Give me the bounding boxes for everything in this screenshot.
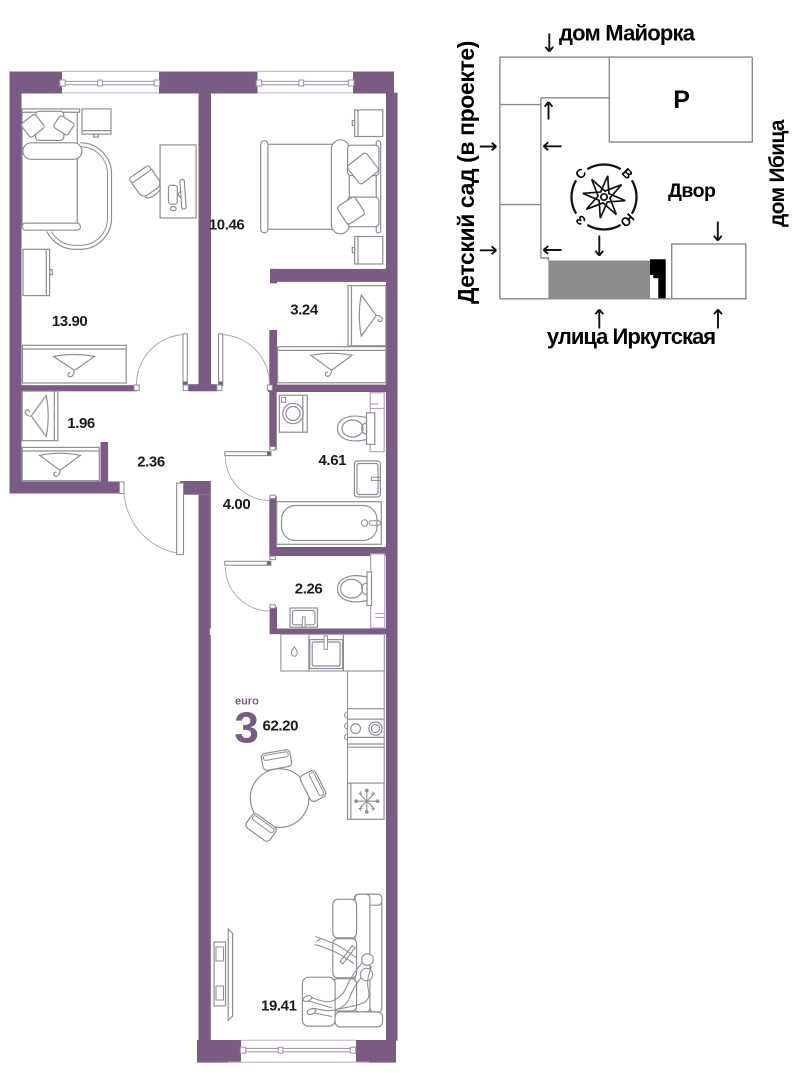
svg-text:4.61: 4.61 [318, 452, 346, 469]
svg-text:2.26: 2.26 [295, 581, 323, 598]
svg-text:Детский сад (в проекте): Детский сад (в проекте) [453, 41, 479, 304]
svg-text:дом Ибица: дом Ибица [766, 119, 789, 227]
svg-text:дом Майорка: дом Майорка [559, 21, 696, 46]
svg-text:62.20: 62.20 [263, 718, 299, 735]
svg-text:2.36: 2.36 [137, 454, 165, 471]
svg-text:10.46: 10.46 [209, 217, 245, 234]
svg-text:19.41: 19.41 [261, 998, 297, 1015]
svg-text:Двор: Двор [668, 180, 716, 202]
svg-text:Р: Р [673, 86, 690, 114]
svg-text:1.96: 1.96 [67, 415, 95, 432]
svg-text:13.90: 13.90 [52, 313, 88, 330]
svg-text:4.00: 4.00 [223, 496, 251, 513]
svg-text:улица Иркутская: улица Иркутская [547, 324, 715, 349]
svg-text:3.24: 3.24 [290, 302, 319, 319]
svg-text:3: 3 [234, 703, 258, 752]
